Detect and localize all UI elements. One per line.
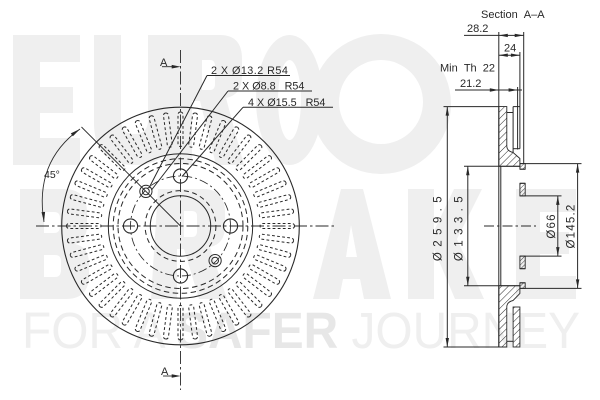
svg-text:24: 24 — [504, 43, 516, 55]
svg-text:45°: 45° — [44, 169, 60, 181]
svg-text:Min Th 22: Min Th 22 — [440, 63, 495, 75]
svg-text:Ø133.5: Ø133.5 — [454, 191, 466, 261]
svg-text:28.2: 28.2 — [467, 23, 488, 35]
svg-text:Ø145.2: Ø145.2 — [566, 204, 578, 249]
svg-text:Ø66: Ø66 — [546, 213, 558, 238]
svg-text:A: A — [160, 57, 168, 69]
svg-text:Ø259.5: Ø259.5 — [433, 191, 445, 261]
svg-text:21.2: 21.2 — [460, 78, 481, 90]
svg-text:FOR A SAFER JOURNEY: FOR A SAFER JOURNEY — [22, 302, 580, 359]
svg-text:Section A–A: Section A–A — [481, 9, 545, 21]
